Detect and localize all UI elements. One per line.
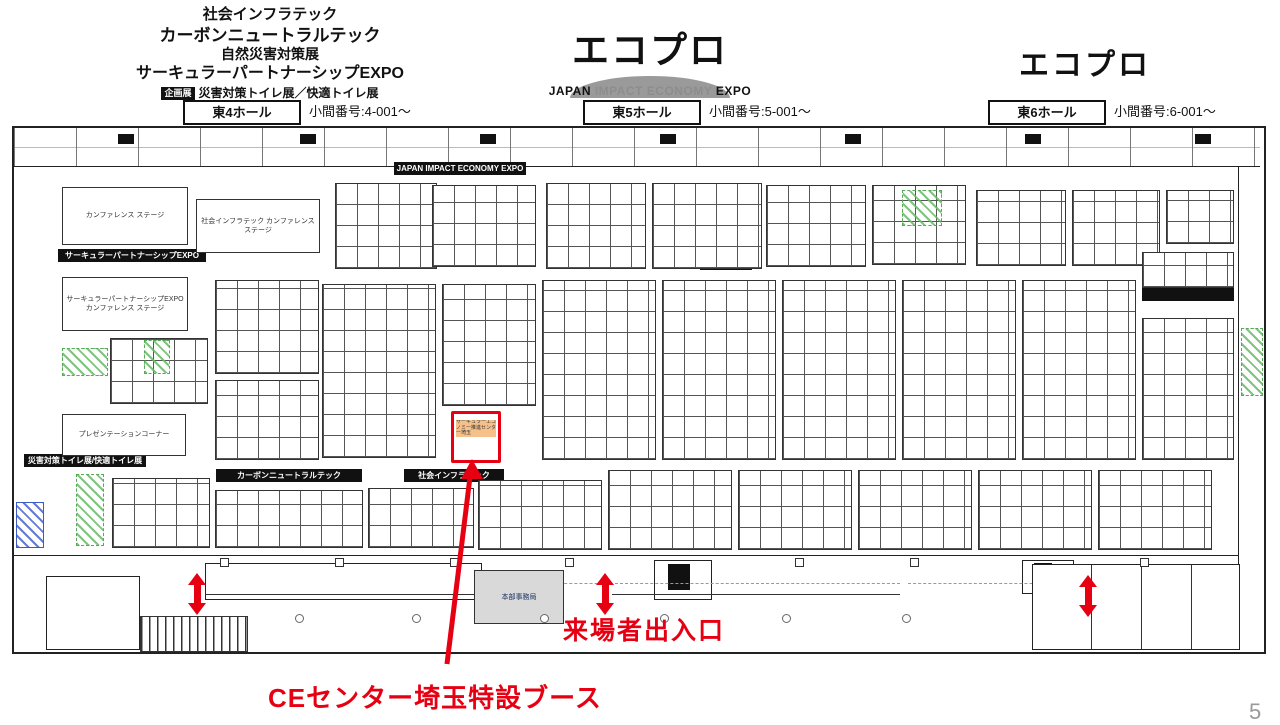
stairs: [140, 616, 248, 652]
banner-japan-impact: JAPAN IMPACT ECONOMY EXPO: [394, 162, 526, 175]
hall-range-east5: 小間番号:5-001〜: [709, 100, 811, 124]
arrow-bar: [194, 585, 201, 603]
logo-sub-impact: IMPACT ECONOMY: [595, 84, 712, 98]
logo-sub-expo: EXPO: [716, 84, 751, 98]
booth-cluster: [1098, 470, 1212, 550]
highlight-booth-label: サーキュラーエコノミー推進センター埼玉: [456, 420, 496, 437]
booth-cluster: [112, 478, 210, 548]
booth-cluster: [1142, 318, 1234, 460]
ecopro-right-logo: エコプロ: [980, 40, 1190, 84]
hall-label-east5: 東5ホール: [583, 100, 701, 125]
title-circular-expo: サーキュラーパートナーシップEXPO: [110, 64, 430, 84]
booth-cluster: [738, 470, 852, 550]
ecopro-center-logo: エコプロ JAPAN IMPACT ECONOMY EXPO: [540, 20, 760, 98]
title-infra-tech: 社会インフラテック: [110, 6, 430, 25]
divider: [1191, 565, 1192, 649]
door-block: [118, 134, 134, 144]
booth-cluster: [1166, 190, 1234, 244]
booth-cluster: [782, 280, 896, 460]
banner-circular-partnership: サーキュラーパートナーシップEXPO: [58, 249, 206, 262]
booth-cluster: [442, 284, 536, 406]
ce-center-callout-label: CEセンター埼玉特設ブース: [268, 678, 602, 715]
stair-zone-blue: [16, 502, 44, 548]
entrance-arrow-icon: [188, 573, 206, 615]
rest-area-green: [1241, 328, 1263, 396]
rest-area-green: [62, 348, 108, 376]
column-round: [412, 614, 421, 623]
stage-conference: カンファレンス ステージ: [62, 187, 188, 245]
divider: [1141, 565, 1142, 649]
arrow-bar: [602, 585, 609, 603]
shutter-dashed-line: [620, 583, 900, 584]
booth-cluster: [902, 280, 1016, 460]
booth-cluster: [858, 470, 972, 550]
booth-cluster: [215, 380, 319, 460]
hq-office-box: 本部事務局: [474, 570, 564, 624]
column-round: [782, 614, 791, 623]
arrow-up-icon: [188, 573, 206, 585]
column: [1140, 558, 1149, 567]
corner-banner: [1142, 288, 1234, 301]
column: [335, 558, 344, 567]
entrance-block: [668, 564, 690, 590]
rest-area-green: [144, 340, 170, 374]
booth-cluster: [1022, 280, 1136, 460]
booth-cluster: [215, 490, 363, 548]
kikakuten-badge: 企画展: [161, 87, 194, 100]
booth-cluster: [478, 480, 602, 550]
door-block: [1025, 134, 1041, 144]
presentation-corner: プレゼンテーションコーナー: [62, 414, 186, 456]
arrow-down-icon: [188, 603, 206, 615]
expo-title-block: 社会インフラテック カーボンニュートラルテック 自然災害対策展 サーキュラーパー…: [110, 6, 430, 101]
highlight-booth-box: サーキュラーエコノミー推進センター埼玉: [451, 411, 501, 463]
concourse-low-wall: [612, 594, 900, 595]
visitor-entrance-label: 来場者出入口: [563, 611, 725, 647]
top-service-strip: [14, 128, 1260, 167]
hall-range-east6: 小間番号:6-001〜: [1114, 100, 1216, 124]
booth-cluster: [1142, 252, 1234, 288]
entrance-arrow-icon: [1079, 575, 1097, 617]
booth-cluster: [662, 280, 776, 460]
column: [795, 558, 804, 567]
column-round: [540, 614, 549, 623]
title-sub-line: 企画展災害対策トイレ展／快適トイレ展: [110, 86, 430, 101]
booth-cluster: [608, 470, 732, 550]
arrow-up-icon: [1079, 575, 1097, 587]
column: [450, 558, 459, 567]
banner-carbon-neutral: カーボンニュートラルテック: [216, 469, 362, 482]
arrow-up-icon: [596, 573, 614, 585]
column-round: [902, 614, 911, 623]
japan-impact-economy-expo-line: JAPAN IMPACT ECONOMY EXPO: [540, 84, 760, 98]
hall-label-east6: 東6ホール: [988, 100, 1106, 125]
column: [565, 558, 574, 567]
concourse-low-wall: [205, 594, 478, 595]
hall-range-east4: 小間番号:4-001〜: [309, 100, 411, 124]
page-number: 5: [1249, 699, 1261, 725]
arrow-bar: [1085, 587, 1092, 605]
door-block: [300, 134, 316, 144]
logo-sub-japan: JAPAN: [549, 84, 591, 98]
title-carbon-neutral: カーボンニュートラルテック: [110, 25, 430, 46]
rest-area-green: [902, 190, 942, 226]
door-block: [1195, 134, 1211, 144]
title-toilet-expo: 災害対策トイレ展／快適トイレ展: [199, 86, 379, 100]
booth-cluster: [368, 488, 474, 548]
door-block: [660, 134, 676, 144]
booth-cluster: [976, 190, 1066, 266]
booth-cluster: [546, 183, 646, 269]
toilet-block: [1032, 564, 1240, 650]
hall-label-east4: 東4ホール: [183, 100, 301, 125]
stage-circular-conference: サーキュラーパートナーシップEXPO カンファレンス ステージ: [62, 277, 188, 331]
booth-cluster: [335, 183, 437, 269]
booth-cluster: [978, 470, 1092, 550]
booth-cluster: [542, 280, 656, 460]
concourse-wall: [14, 555, 1238, 556]
title-disaster-expo: 自然災害対策展: [110, 46, 430, 64]
booth-cluster: [766, 185, 866, 267]
ecopro-logo-text: エコプロ: [540, 20, 760, 74]
service-rooms: [46, 576, 140, 650]
column: [220, 558, 229, 567]
stage-infra-conference: 社会インフラテック カンファレンス ステージ: [196, 199, 320, 253]
column: [910, 558, 919, 567]
door-block: [480, 134, 496, 144]
arrow-down-icon: [1079, 605, 1097, 617]
booth-cluster: [322, 284, 436, 458]
booth-cluster: [652, 183, 762, 269]
entrance-arrow-icon: [596, 573, 614, 615]
column-round: [295, 614, 304, 623]
door-block: [845, 134, 861, 144]
booth-cluster: [215, 280, 319, 374]
booth-cluster: [432, 185, 536, 267]
rest-area-green: [76, 474, 104, 546]
